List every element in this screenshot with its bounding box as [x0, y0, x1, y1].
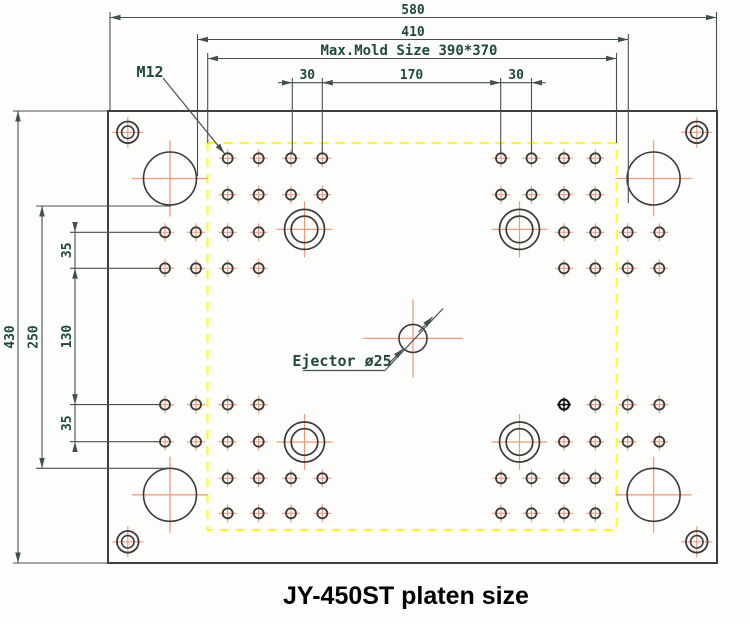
dim-label-35-top: 35 — [60, 242, 75, 258]
dim-label-30-right: 30 — [508, 68, 524, 83]
dim-label-430: 430 — [3, 325, 18, 349]
mold-size-label: Max.Mold Size 390*370 — [320, 43, 497, 59]
ejector-label: Ejector ø25 — [292, 352, 391, 370]
dim-label-580: 580 — [401, 3, 425, 18]
dim-label-170: 170 — [400, 68, 424, 83]
dim-label-410: 410 — [401, 25, 425, 40]
dim-label-35-bottom: 35 — [60, 415, 75, 431]
m12-label: M12 — [136, 63, 163, 81]
drawing-title: JY-450ST platen size — [283, 582, 529, 610]
platen-drawing: 580 410 Max.Mold Size 390*370 30 170 30 … — [0, 0, 750, 624]
dim-label-30-left: 30 — [299, 68, 315, 83]
dim-label-130: 130 — [60, 325, 75, 349]
dim-label-250: 250 — [27, 325, 42, 349]
platen-drawing-sheet: 580 410 Max.Mold Size 390*370 30 170 30 … — [0, 0, 750, 624]
bolt-hole-marked-dot — [563, 403, 566, 406]
